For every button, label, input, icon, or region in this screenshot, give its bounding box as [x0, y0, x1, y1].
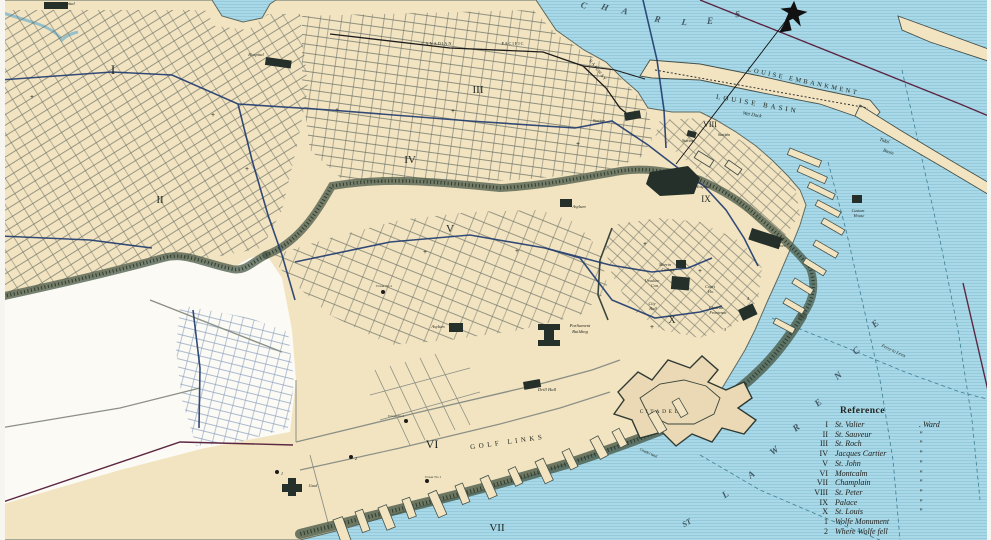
legend-ward-suffix: [919, 527, 959, 537]
map-label: V: [446, 223, 454, 235]
legend-ward-suffix: ": [919, 439, 959, 449]
map-label: Con.: [651, 283, 659, 288]
map-label: Station: [718, 132, 730, 137]
legend-row: VIIISt. Peter": [806, 488, 990, 498]
church-cross-icon: +: [451, 107, 455, 115]
legend-ward-name: Palace: [835, 498, 919, 508]
church-cross-icon: +: [698, 267, 702, 275]
map-label: VIII: [703, 120, 717, 129]
legend-row: IVJacques Cartier": [806, 449, 990, 459]
legend-ward-suffix: ": [919, 478, 959, 488]
legend-ward-name: St. Peter: [835, 488, 919, 498]
legend-ward-suffix: ": [919, 449, 959, 459]
legend-ward-numeral: VII: [806, 478, 828, 488]
legend-row: VIIChamplain": [806, 478, 990, 488]
martello-tower-4-dot: [404, 419, 408, 423]
legend-title: Reference: [840, 406, 990, 416]
map-label: Parliament: [569, 323, 591, 328]
asylum-building: [449, 323, 463, 332]
map-label: 1: [281, 471, 283, 476]
legend-row: VIMontcalm": [806, 469, 990, 479]
map-label: VII: [489, 522, 505, 534]
map-label: Asylum: [430, 324, 445, 329]
map-label: Ho.: [707, 289, 714, 294]
map-label: Hospital: [247, 52, 264, 57]
legend-ward-suffix: ": [919, 459, 959, 469]
legend-ward-numeral: V: [806, 459, 828, 469]
legend-ward-name: St. Sauveur: [835, 430, 919, 440]
legend-ward-numeral: I: [806, 420, 828, 430]
legend-ward-name: Jacques Cartier: [835, 449, 919, 459]
wolfe-monument-dot: [275, 470, 279, 474]
map-label: Station: [682, 138, 694, 143]
map-label: Building: [572, 329, 589, 334]
legend-ward-numeral: IX: [806, 498, 828, 508]
map-label: Gaol: [309, 483, 319, 488]
legend-ward-suffix: ": [919, 488, 959, 498]
legend-ward-name: St. Roch: [835, 439, 919, 449]
map-canvas: ++++++++++++ HospitalHospitalHospitalAsy…: [0, 0, 991, 540]
church-cross-icon: +: [515, 247, 519, 255]
map-label: Frontenac: [708, 310, 726, 315]
martello-tower-2-dot: [381, 290, 385, 294]
church-cross-icon: +: [855, 194, 859, 202]
map-label: Tower No 4: [388, 414, 404, 418]
left-margin: [0, 0, 5, 540]
asylum-building: [560, 199, 572, 207]
legend-ward-numeral: X: [806, 507, 828, 517]
map-label: Hospital: [58, 1, 75, 6]
legend-row: 2Where Wolfe fell: [806, 527, 990, 537]
map-label: X: [668, 315, 676, 326]
map-label: IV: [404, 154, 416, 166]
map-label: Univer.: [774, 243, 787, 248]
map-label: CITADEL: [640, 409, 681, 415]
church-cross-icon: +: [245, 165, 249, 173]
legend-ward-name: Montcalm: [835, 469, 919, 479]
church-cross-icon: +: [30, 93, 34, 101]
map-label: E: [706, 16, 713, 26]
legend-ward-name: St. Louis: [835, 507, 919, 517]
legend-ward-numeral: IV: [806, 449, 828, 459]
map-label: Hospital: [694, 184, 711, 189]
map-label: Tower No 1: [425, 475, 441, 479]
map-label: IX: [701, 194, 711, 204]
legend-ward-name: Where Wolfe fell: [835, 527, 919, 537]
legend-ward-suffix: ": [919, 507, 959, 517]
legend-rows: ISt. Valier. WardIISt. Sauveur"IIISt. Ro…: [806, 420, 990, 536]
map-label: College: [661, 267, 674, 272]
map-label: Tower No 2: [376, 284, 392, 288]
legend-row: IISt. Sauveur": [806, 430, 990, 440]
legend-ward-suffix: . Ward: [919, 420, 959, 430]
map-label: Station: [593, 118, 605, 123]
legend-ward-name: Wolfe Monument: [835, 517, 919, 527]
map-label: III: [473, 84, 484, 96]
legend-row: VSt. John": [806, 459, 990, 469]
church-cross-icon: +: [576, 140, 580, 148]
legend-ward-numeral: 2: [806, 527, 828, 537]
map-label: VI: [426, 437, 439, 451]
legend-ward-numeral: II: [806, 430, 828, 440]
legend-row: IXPalace": [806, 498, 990, 508]
legend-ward-name: St. John: [835, 459, 919, 469]
legend-ward-name: Champlain: [835, 478, 919, 488]
martello-tower-1-dot: [425, 479, 429, 483]
wolfe-fell-dot: [349, 455, 353, 459]
map-label: PACIFIC: [501, 41, 524, 46]
legend-row: 1Wolfe Monument: [806, 517, 990, 527]
map-label: Asylum: [571, 204, 586, 209]
map-label: House: [853, 213, 865, 218]
church-cross-icon: +: [211, 111, 215, 119]
morrin-college-building: [676, 260, 686, 268]
legend-ward-numeral: VIII: [806, 488, 828, 498]
legend-ward-numeral: 1: [806, 517, 828, 527]
map-label: II: [156, 194, 164, 206]
legend-row: IIISt. Roch": [806, 439, 990, 449]
church-cross-icon: +: [650, 323, 654, 331]
legend-ward-numeral: III: [806, 439, 828, 449]
map-label: CANADIAN: [422, 41, 453, 46]
legend-ward-suffix: ": [919, 498, 959, 508]
map-label: Hall: [648, 306, 657, 311]
legend-row: XSt. Louis": [806, 507, 990, 517]
map-label: Drill Hall: [537, 387, 557, 392]
legend-ward-suffix: ": [919, 430, 959, 440]
church-cross-icon: +: [423, 248, 427, 256]
legend-row: ISt. Valier. Ward: [806, 420, 990, 430]
legend-ward-suffix: ": [919, 469, 959, 479]
church-cross-icon: +: [643, 240, 647, 248]
ursuline-convent-building: [671, 276, 690, 291]
map-label: I: [111, 62, 115, 77]
map-label: Laval: [772, 237, 784, 242]
legend-ward-numeral: VI: [806, 469, 828, 479]
legend-ward-suffix: [919, 517, 959, 527]
reference-legend: Reference ISt. Valier. WardIISt. Sauveur…: [806, 406, 990, 540]
legend-ward-name: St. Valier: [835, 420, 919, 430]
church-cross-icon: +: [335, 106, 339, 114]
